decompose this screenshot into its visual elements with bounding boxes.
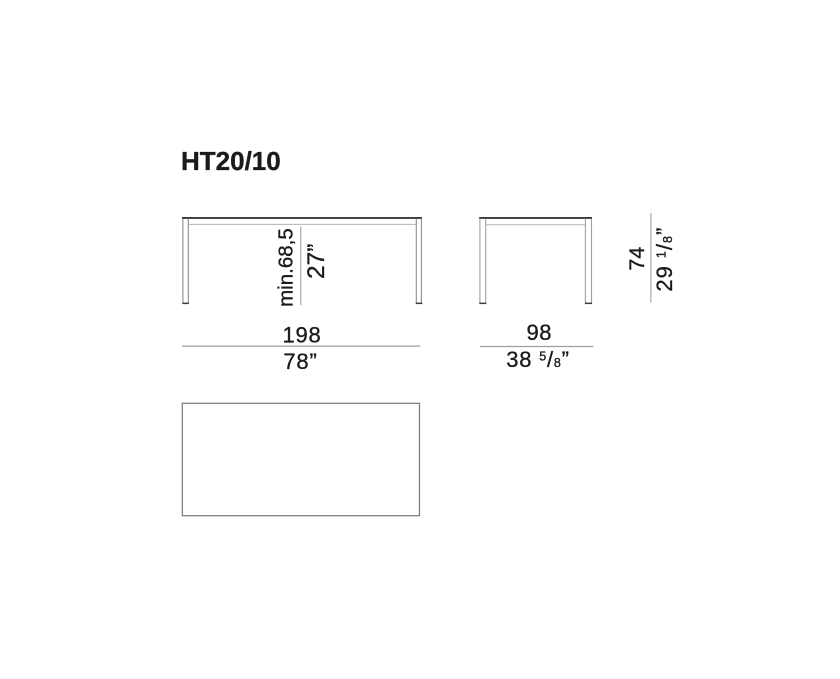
svg-text:98: 98 [527,320,552,345]
svg-text:38 5/8”: 38 5/8” [506,347,570,372]
svg-text:HT20/10: HT20/10 [181,146,281,176]
svg-text:198: 198 [282,323,321,348]
svg-text:74: 74 [625,247,649,271]
svg-text:27”: 27” [303,244,330,279]
svg-text:78”: 78” [283,349,317,374]
svg-text:min.68,5: min.68,5 [275,228,298,307]
svg-text:29 1/8”: 29 1/8” [652,227,677,292]
